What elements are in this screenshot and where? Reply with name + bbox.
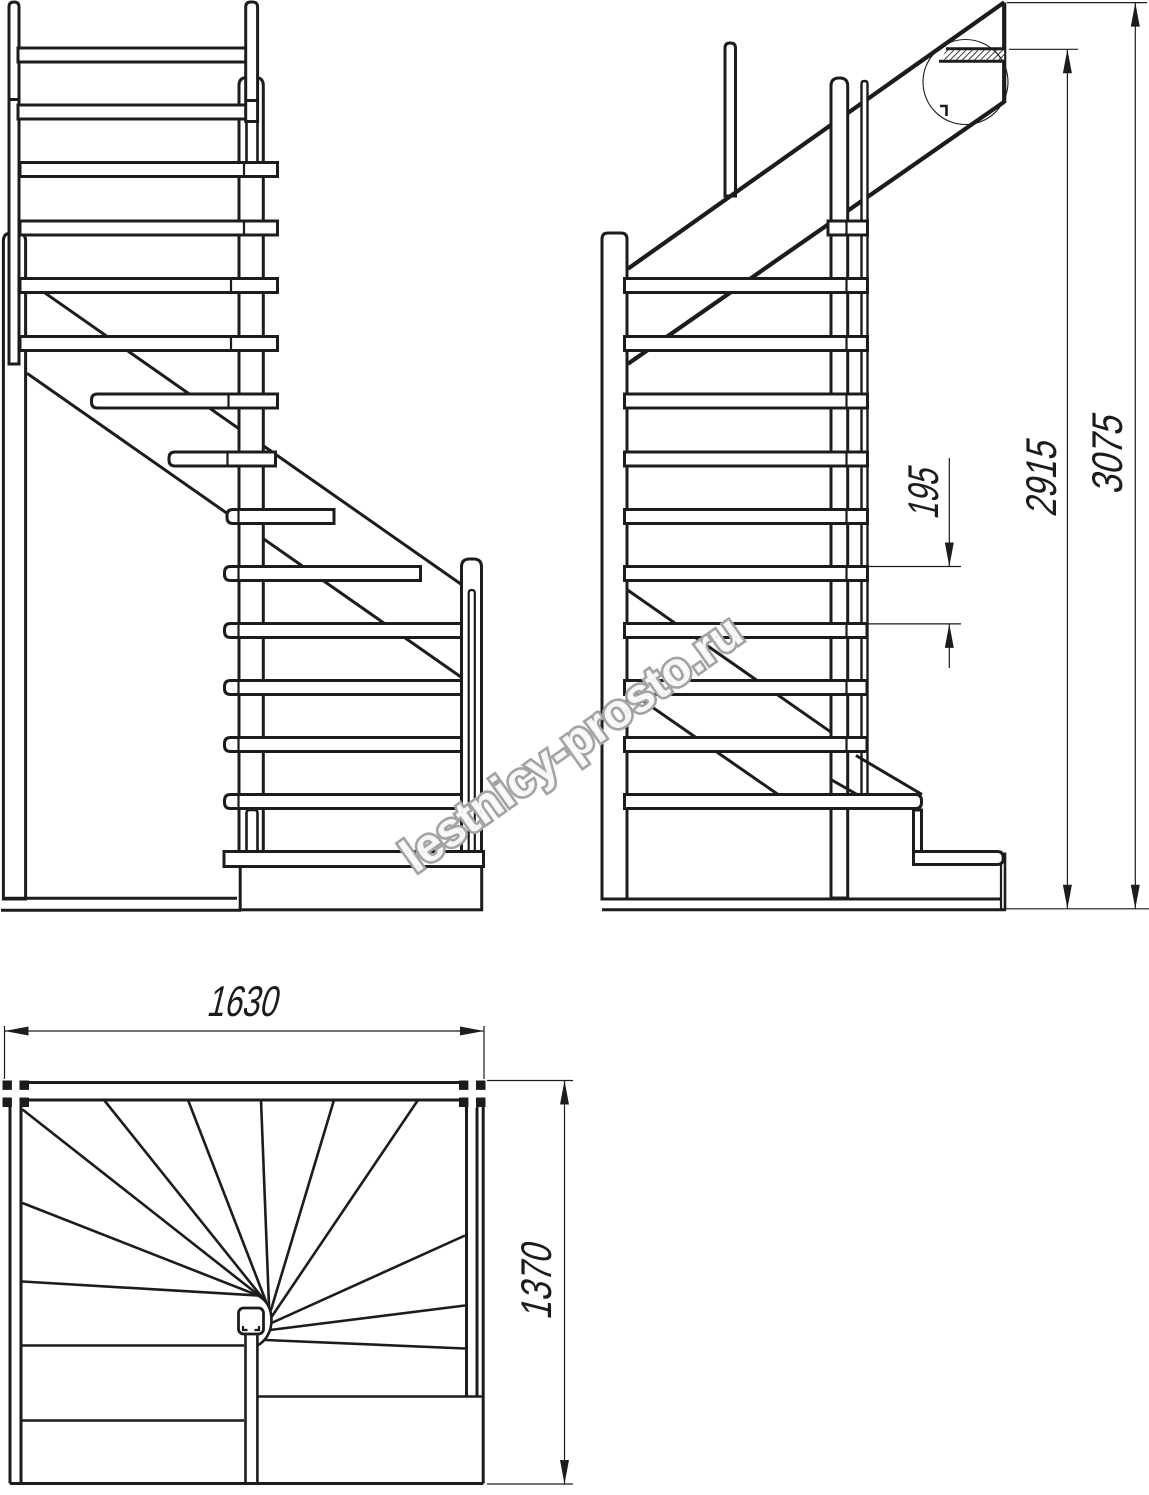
svg-text:1630: 1630	[204, 978, 286, 1026]
svg-text:1370: 1370	[513, 1236, 561, 1323]
svg-text:2915: 2915	[1018, 433, 1066, 520]
svg-text:3075: 3075	[1084, 407, 1132, 497]
